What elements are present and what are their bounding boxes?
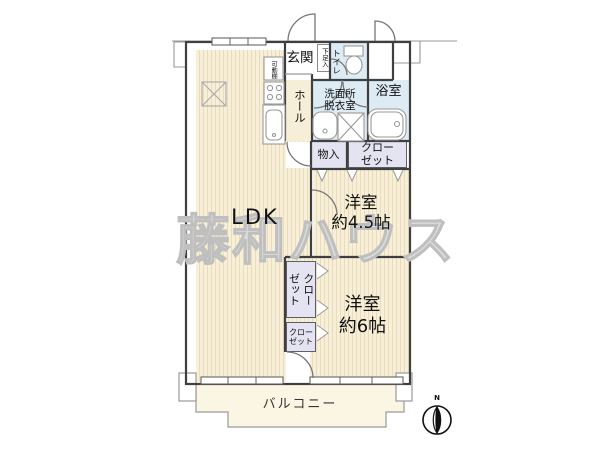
label-closet-lower: クローゼット <box>286 322 316 352</box>
floor-plan: 藤和ハウス LDK 洋室約4.5帖 洋室約6帖 玄関 ホール トイレ 下足入 可… <box>0 0 600 450</box>
north-label: N <box>429 393 445 403</box>
room-label-washroom: 洗面所脱衣室 <box>312 84 368 116</box>
label-closet-upper: クローゼット <box>348 141 407 168</box>
compass-icon <box>423 406 451 434</box>
room-ldk-floor-lower <box>196 257 285 382</box>
window-top <box>212 38 266 45</box>
door-area-ldk <box>286 142 310 168</box>
label-movable-shelf: 可動棚 <box>266 59 281 81</box>
door-area-western-6 <box>286 352 310 382</box>
room-label-bathroom: 浴室 <box>368 82 409 102</box>
entrance-door-arc <box>288 14 315 41</box>
label-closet-tall: クローゼット <box>286 261 316 318</box>
room-label-entrance: 玄関 <box>283 44 317 72</box>
room-label-hall: ホール <box>287 76 311 136</box>
room-label-ldk: LDK <box>200 196 310 240</box>
label-storage: 物入 <box>310 142 347 168</box>
label-shoe-cabinet: 下足入 <box>317 44 330 72</box>
room-label-western-4-5: 洋室約4.5帖 <box>313 188 409 238</box>
room-label-western-6: 洋室約6帖 <box>316 290 409 342</box>
room-label-toilet: トイレ <box>329 44 342 80</box>
neighbor-door-arc <box>375 21 395 41</box>
room-label-balcony: バルコニー <box>230 396 370 413</box>
